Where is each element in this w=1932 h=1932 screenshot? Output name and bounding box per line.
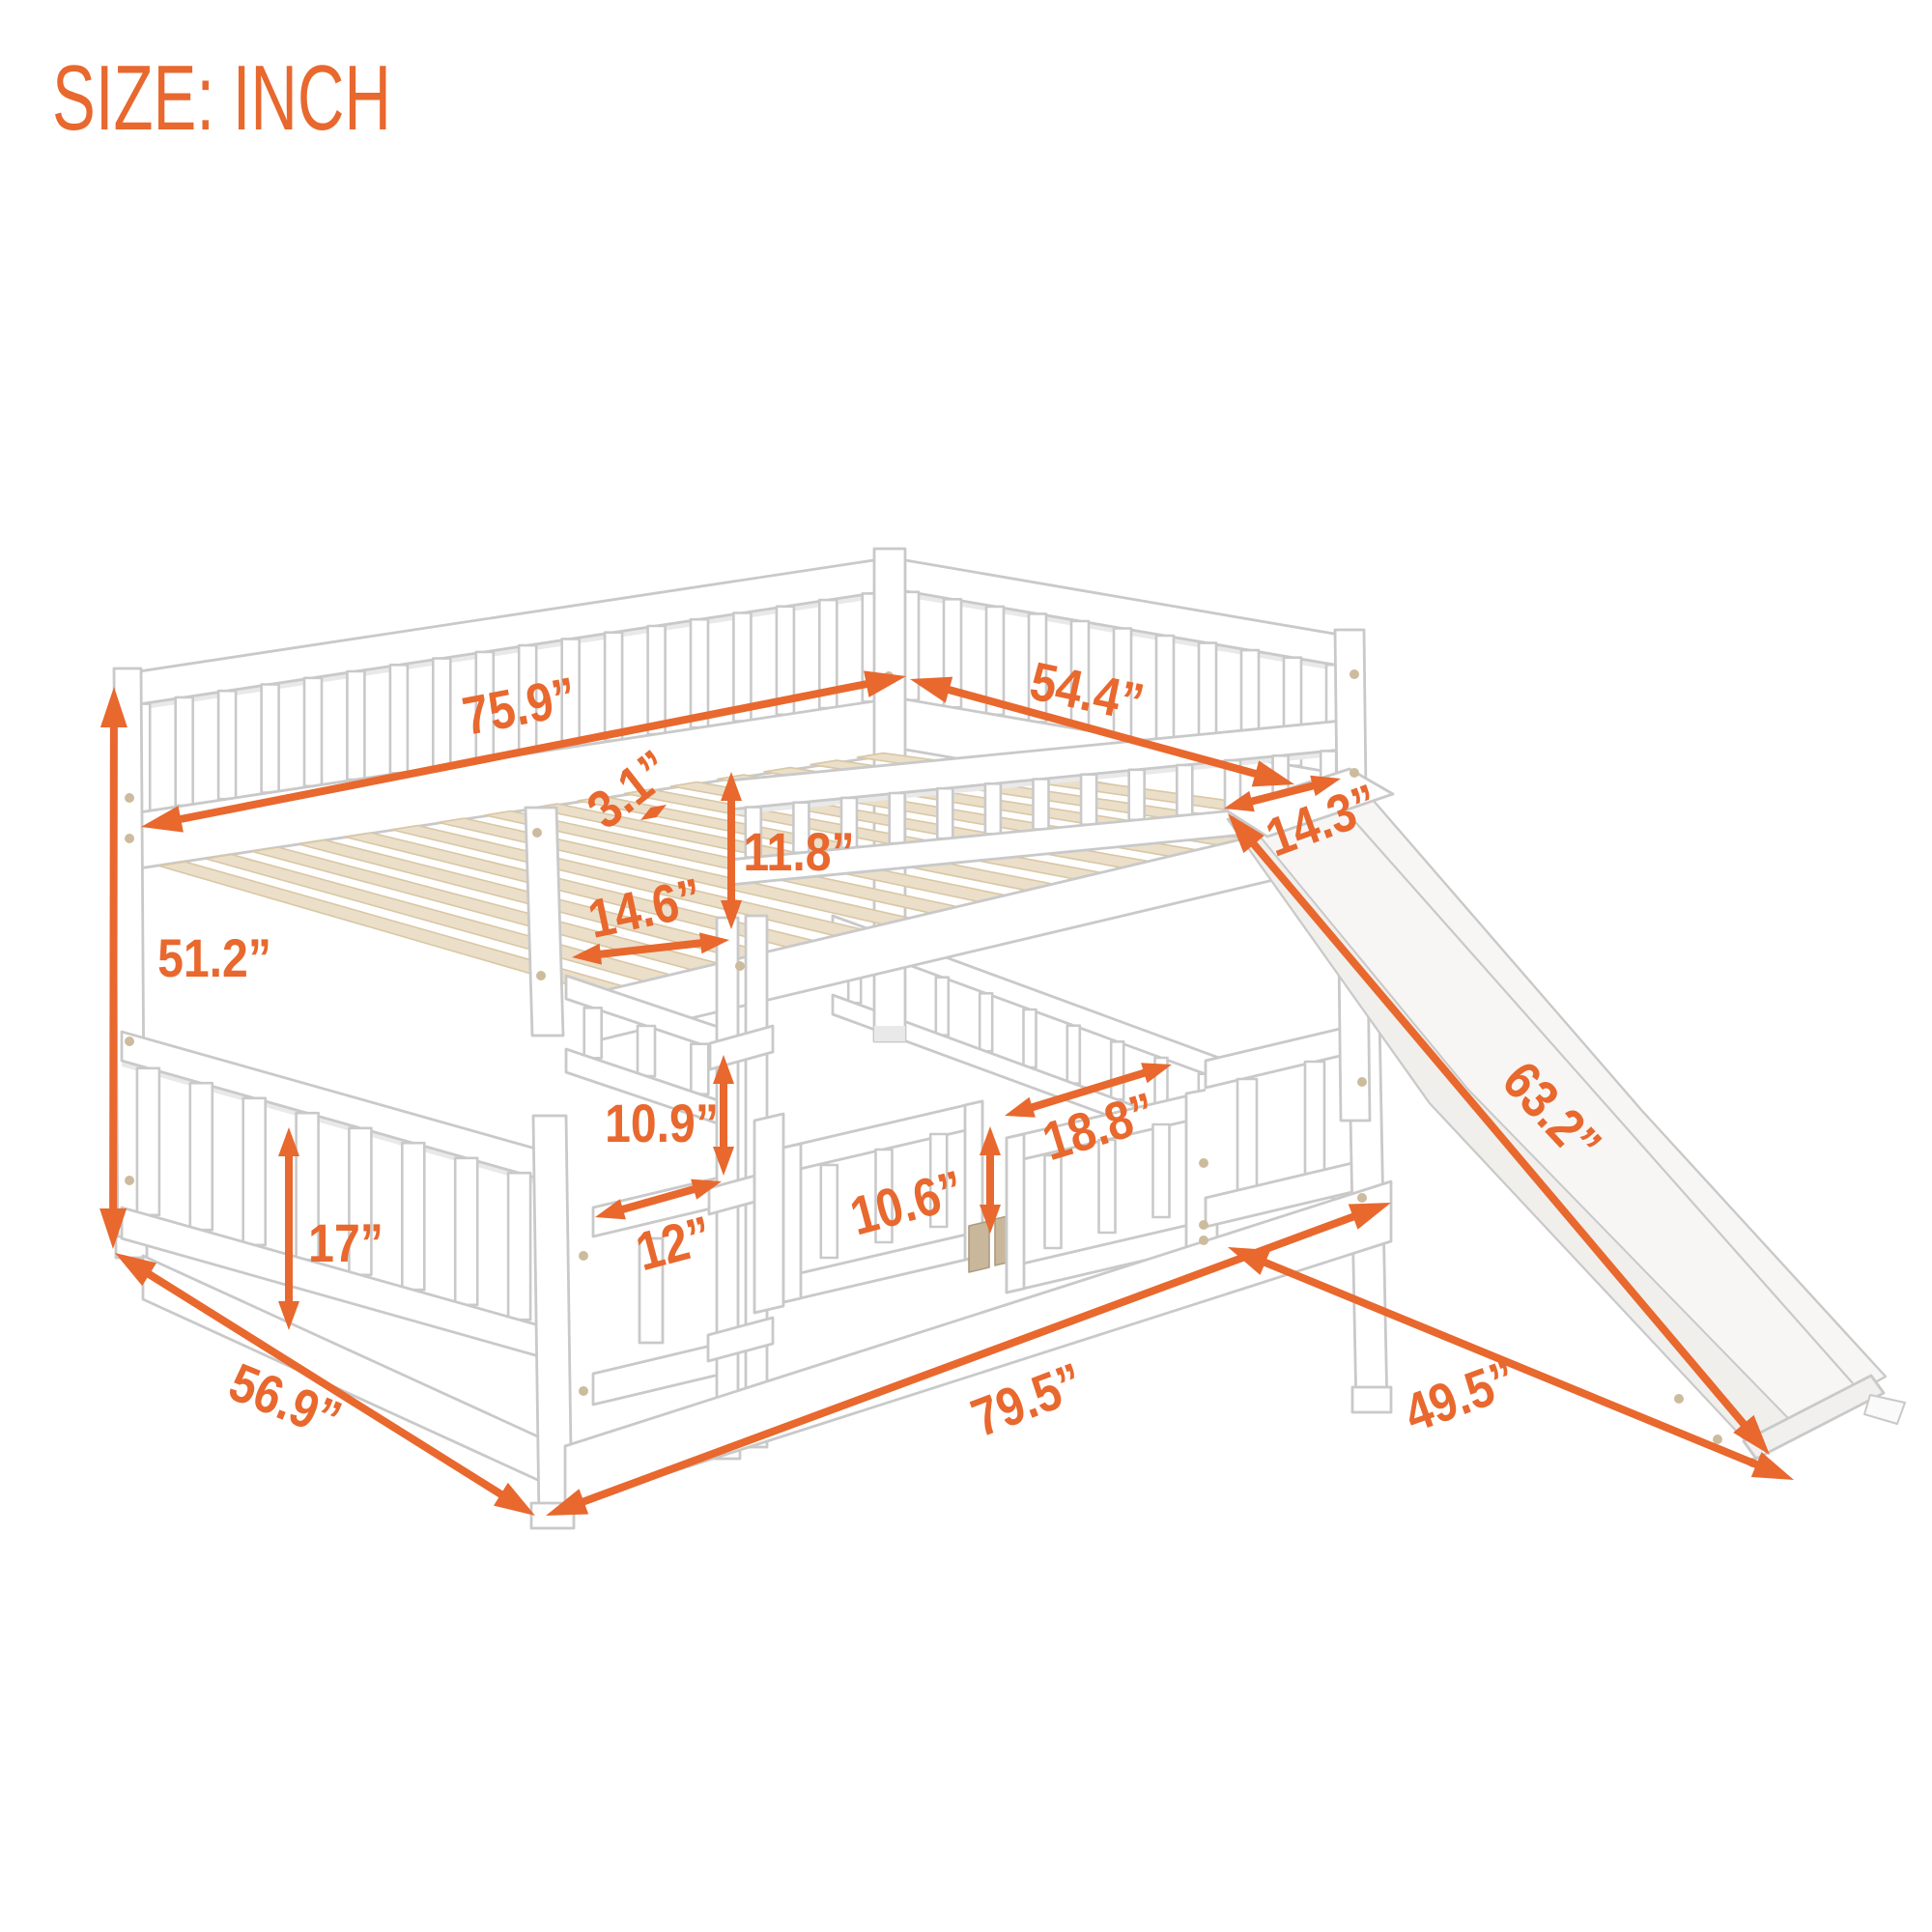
svg-text:17”: 17” xyxy=(308,1214,384,1274)
svg-text:51.2”: 51.2” xyxy=(157,929,271,989)
svg-text:SIZE: INCH: SIZE: INCH xyxy=(52,45,391,150)
svg-text:11.8”: 11.8” xyxy=(743,823,854,883)
svg-text:10.9”: 10.9” xyxy=(605,1094,719,1154)
